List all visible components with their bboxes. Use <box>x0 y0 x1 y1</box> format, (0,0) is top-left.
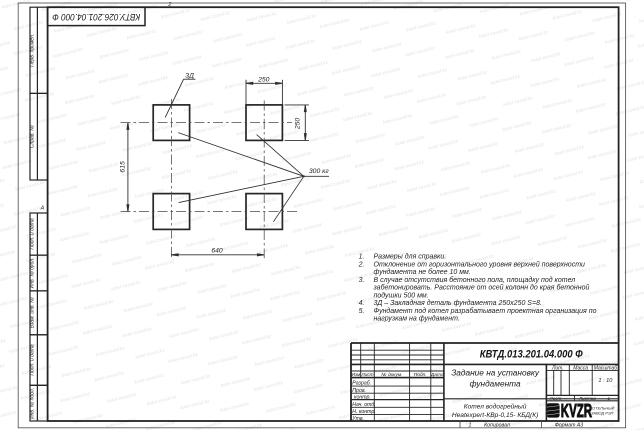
svg-text:Фундамент под котел разрабатыв: Фундамент под котел разрабатывает проект… <box>374 307 597 315</box>
svg-text:фундамента не более 10 мм.: фундамента не более 10 мм. <box>374 268 471 276</box>
svg-text:Подп. и дата: Подп. и дата <box>30 218 36 250</box>
svg-text:1: 1 <box>469 422 472 428</box>
svg-text:Формат А3: Формат А3 <box>555 422 583 428</box>
svg-text:615: 615 <box>120 161 127 173</box>
svg-text:Утв.: Утв. <box>352 416 364 422</box>
svg-text:Масса: Масса <box>573 365 588 371</box>
svg-text:Масштаб: Масштаб <box>594 365 618 371</box>
svg-text:Листов: Листов <box>578 396 596 401</box>
svg-text:Задание на установку: Задание на установку <box>451 367 540 377</box>
svg-text:фундамента: фундамента <box>470 378 521 388</box>
svg-text:Лит.: Лит. <box>551 365 564 371</box>
svg-text:Подп.: Подп. <box>414 372 427 378</box>
svg-text:Лист: Лист <box>549 396 562 401</box>
svg-text:Разраб.: Разраб. <box>352 381 371 387</box>
svg-text:Лист: Лист <box>360 372 373 378</box>
svg-text:ЗАВОД РЭП: ЗАВОД РЭП <box>591 411 614 416</box>
svg-text:2.: 2. <box>358 261 365 268</box>
svg-text:3Д – Закладная деталь фундамен: 3Д – Закладная деталь фундамента 250х250… <box>374 299 542 307</box>
svg-text:Размеры для справки.: Размеры для справки. <box>374 253 447 261</box>
svg-text:Взам. инв. №: Взам. инв. № <box>30 297 36 329</box>
svg-text:1.: 1. <box>359 254 365 261</box>
svg-text:В случае отсутствия бетонного: В случае отсутствия бетонного пола, площ… <box>374 276 576 284</box>
svg-text:640: 640 <box>211 248 223 255</box>
svg-text:250: 250 <box>257 76 270 83</box>
svg-text:КВТД.013.201.04.000 Ф: КВТД.013.201.04.000 Ф <box>480 349 583 361</box>
svg-text:забетонировать. Расстояние от: забетонировать. Расстояние от осей колон… <box>373 284 590 292</box>
svg-text:1 : 10: 1 : 10 <box>598 378 613 384</box>
svg-text:Нач. отд.: Нач. отд. <box>352 402 375 408</box>
svg-text:Инв. № дубл.: Инв. № дубл. <box>30 258 36 289</box>
svg-text:Котел водогрейный: Котел водогрейный <box>464 402 527 410</box>
svg-text:1: 1 <box>608 396 611 401</box>
svg-text:подушки 500 мм.: подушки 500 мм. <box>374 291 429 299</box>
svg-text:А: А <box>40 205 45 211</box>
svg-text:Перв. примен.: Перв. примен. <box>30 34 36 67</box>
svg-text:Справ. №: Справ. № <box>30 125 36 148</box>
svg-text:Подп. и дата: Подп. и дата <box>30 344 36 376</box>
svg-text:№ докум.: № докум. <box>381 372 402 378</box>
svg-text:Копировал: Копировал <box>484 422 510 428</box>
svg-text:нагрузкам на фундамент.: нагрузкам на фундамент. <box>374 315 460 323</box>
svg-text:250: 250 <box>295 118 302 131</box>
svg-text:300 кг: 300 кг <box>309 168 329 175</box>
svg-text:Дата: Дата <box>430 372 444 378</box>
svg-text:контр.: контр. <box>354 394 371 400</box>
svg-text:2: 2 <box>167 2 171 8</box>
svg-text:4.: 4. <box>359 300 365 307</box>
svg-text:3Д: 3Д <box>185 73 194 80</box>
svg-text:5.: 5. <box>359 308 365 315</box>
svg-text:Инв. № подл.: Инв. № подл. <box>30 388 36 419</box>
svg-text:Пров.: Пров. <box>352 388 366 394</box>
svg-text:КВТУ.026.201.04.000 Ф: КВТУ.026.201.04.000 Ф <box>52 11 140 22</box>
svg-text:3.: 3. <box>359 277 365 284</box>
svg-text:Отклонение от горизонтального: Отклонение от горизонтального уровня вер… <box>374 260 586 268</box>
svg-text:Изм: Изм <box>351 372 361 378</box>
svg-text:Н. контр.: Н. контр. <box>352 409 375 415</box>
svg-text:Heatexpert-КВр-0,15- КБД(К): Heatexpert-КВр-0,15- КБД(К) <box>452 412 538 419</box>
svg-text:KVZR: KVZR <box>561 402 592 422</box>
